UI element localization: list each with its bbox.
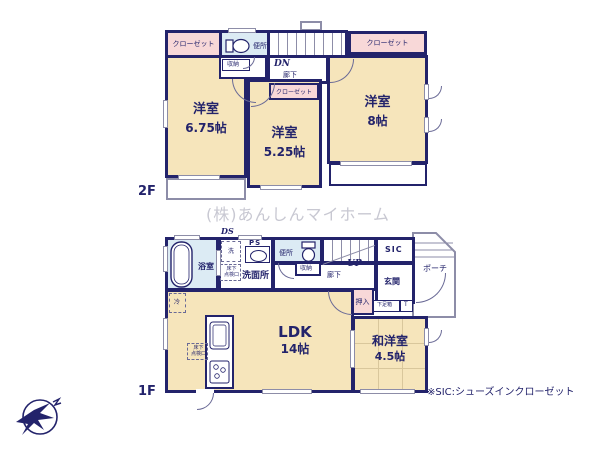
- washroom-label: 洗面所: [242, 271, 269, 281]
- f1-toilet-room: 便所: [272, 237, 323, 264]
- window: [238, 235, 262, 240]
- window: [260, 185, 302, 190]
- casement-arc: [429, 86, 442, 99]
- f2-closet-left: クローゼット: [165, 30, 222, 58]
- f2-balcony-right: [329, 163, 427, 186]
- f2-toilet-room: 便所: [219, 30, 270, 58]
- fridge-label: 冷: [174, 300, 180, 307]
- sliding-door: [216, 250, 221, 276]
- storage-label: 収納: [227, 62, 239, 69]
- entrance-label: 玄関: [384, 277, 400, 286]
- f2-stairs: [270, 33, 345, 56]
- f2-floor-label: 2F: [138, 185, 156, 200]
- toilet-label: 便所: [279, 249, 293, 257]
- toilet-icon: [298, 241, 318, 263]
- f1-floor-label: 1F: [138, 385, 156, 400]
- hatch-line2: 点検口: [224, 273, 239, 279]
- footnote: ※SIC:シューズインクローゼット: [427, 387, 575, 399]
- bathtub-icon: [170, 241, 194, 289]
- f2-stairwell: [267, 30, 348, 58]
- closet-label: クローゼット: [276, 87, 312, 96]
- window: [228, 28, 256, 33]
- room-size: 8帖: [367, 112, 387, 129]
- f2-balcony-left: [166, 178, 246, 200]
- closet-label: クローゼット: [173, 39, 215, 49]
- toilet-icon: [225, 37, 251, 55]
- oshiire-label: 押入: [356, 297, 370, 307]
- storage-label: 収納: [300, 266, 312, 273]
- sink-basin-icon: [250, 250, 267, 262]
- shoebox-t-label: T: [404, 302, 408, 309]
- window: [174, 235, 200, 240]
- f1-oshiire: 押入: [351, 288, 374, 315]
- f2-closet-mid: クローゼット: [269, 83, 319, 100]
- window: [340, 161, 412, 166]
- window: [360, 389, 415, 394]
- porch-label: ポーチ: [423, 264, 447, 273]
- sic-label: SIC: [385, 245, 403, 254]
- room-size: 6.75帖: [185, 119, 227, 136]
- f1-bathroom: 浴室: [165, 237, 219, 291]
- watermark: (株)あんしんマイホーム: [206, 206, 390, 224]
- washitsu-size: 4.5帖: [375, 351, 406, 364]
- sliding-door: [350, 330, 355, 368]
- window: [178, 175, 220, 180]
- vanity-sink: [245, 246, 270, 263]
- casement-arc: [429, 119, 442, 132]
- room-size: 5.25帖: [264, 143, 306, 160]
- room-name: 洋室: [271, 122, 297, 141]
- hallway-label: 廊下: [283, 71, 297, 79]
- hatch-line2: 点検口: [191, 352, 206, 358]
- room-name: 洋室: [364, 91, 390, 110]
- tatami-line: [355, 368, 425, 369]
- hallway-label: 廊下: [327, 271, 341, 279]
- stairs-dn-label: DN: [274, 59, 290, 69]
- stairs-up-label: UP: [347, 259, 362, 269]
- washitsu-name: 和洋室: [372, 335, 408, 349]
- room-name: 洋室: [193, 98, 219, 117]
- f2-closet-right: クローゼット: [348, 31, 427, 55]
- door-arc: [197, 393, 214, 410]
- toilet-label: 便所: [253, 42, 267, 50]
- closet-label: クローゼット: [367, 38, 409, 48]
- window: [163, 100, 168, 128]
- floorplan-canvas: 洋室 6.75帖 洋室 5.25帖 洋室 8帖 クローゼット 便所 クローゼット…: [0, 0, 600, 449]
- laundry-label: 洗: [228, 249, 234, 256]
- company-logo-bird-compass-icon: [10, 390, 66, 446]
- shoebox-label: 下足箱: [377, 303, 392, 309]
- ds-label: DS: [221, 227, 234, 236]
- casement-arc: [429, 330, 442, 343]
- ldk-size: 14帖: [281, 343, 310, 357]
- window: [163, 318, 168, 350]
- window: [262, 389, 312, 394]
- window: [163, 246, 168, 272]
- kitchen-counter-icon: [205, 315, 234, 389]
- bath-label: 浴室: [198, 262, 214, 271]
- ldk-name: LDK: [278, 324, 312, 341]
